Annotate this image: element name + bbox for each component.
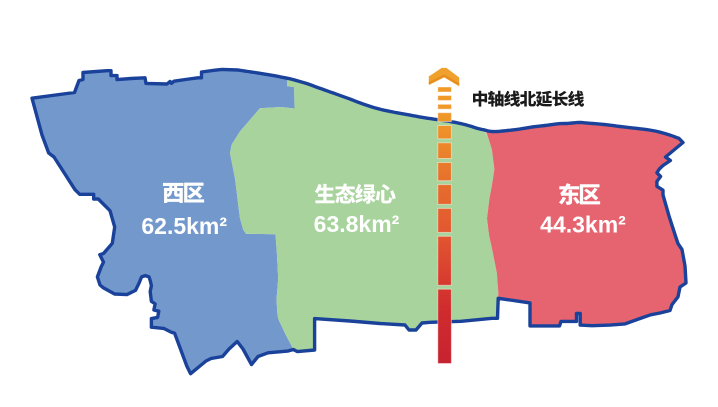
svg-text:62.5km²: 62.5km² [141, 213, 227, 239]
svg-text:63.8km²: 63.8km² [314, 211, 400, 237]
svg-text:44.3km²: 44.3km² [540, 212, 626, 238]
